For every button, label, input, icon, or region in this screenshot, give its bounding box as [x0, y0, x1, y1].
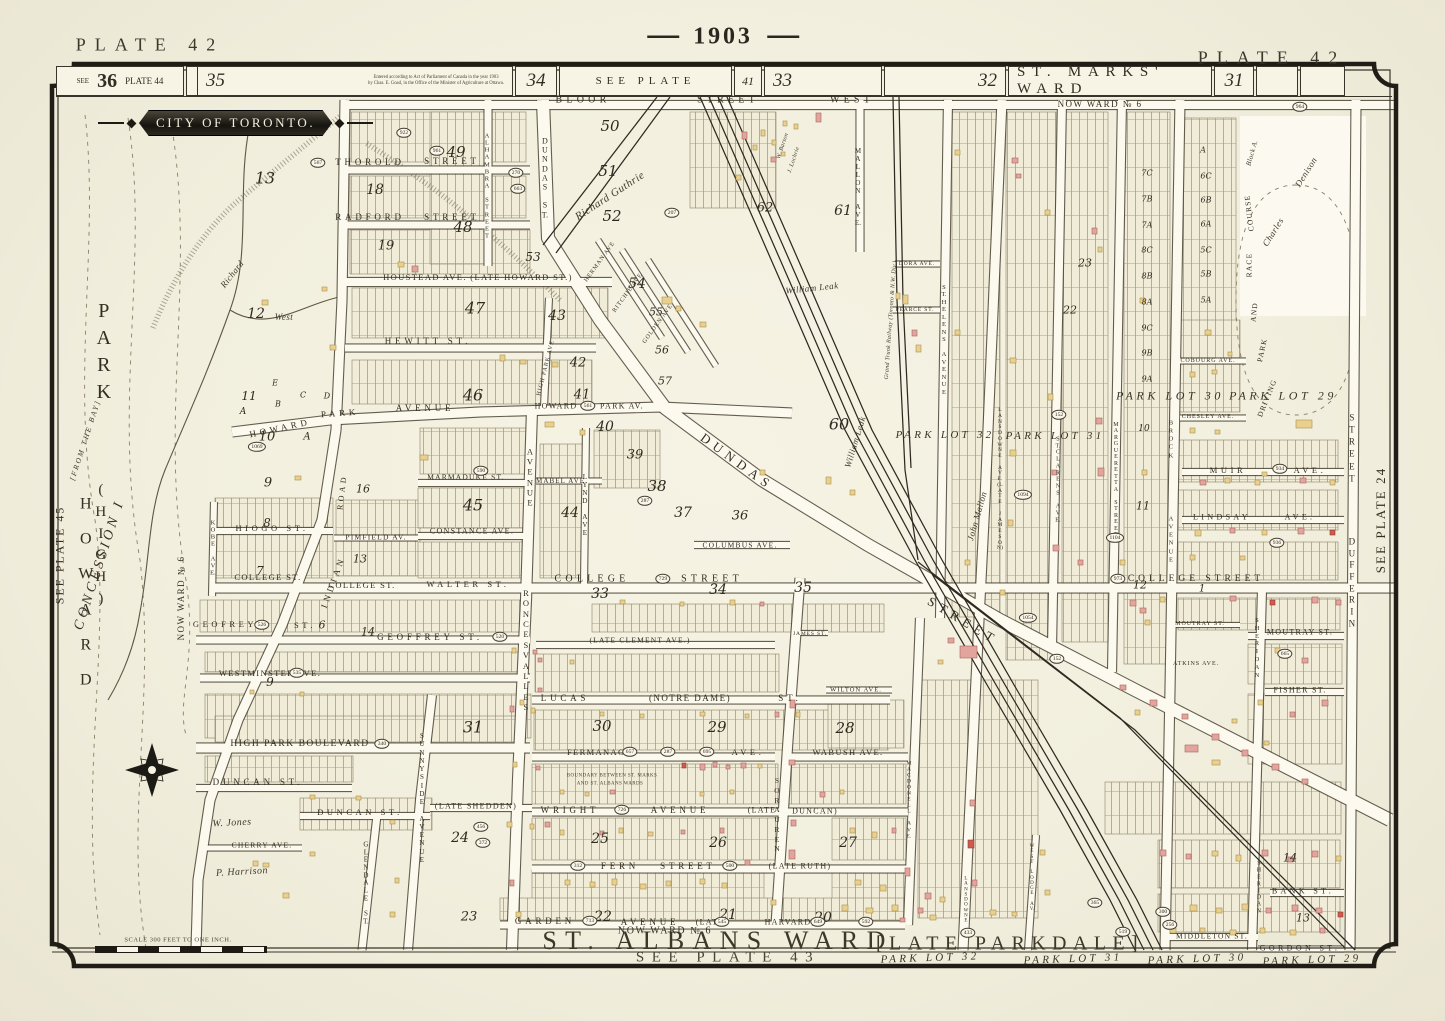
banner-diamond-left	[127, 118, 137, 128]
banner-rule-right	[347, 122, 373, 124]
city-of-toronto-banner: CITY OF TORONTO.	[98, 110, 373, 136]
banner-diamond-right	[335, 118, 345, 128]
banner-title: CITY OF TORONTO.	[139, 110, 332, 136]
scale-bar	[95, 946, 267, 953]
map-canvas[interactable]: SEE36PLATE 4435Entered according to Act …	[0, 0, 1445, 1021]
map-graphics	[0, 0, 1445, 1021]
banner-rule-left	[98, 122, 124, 124]
